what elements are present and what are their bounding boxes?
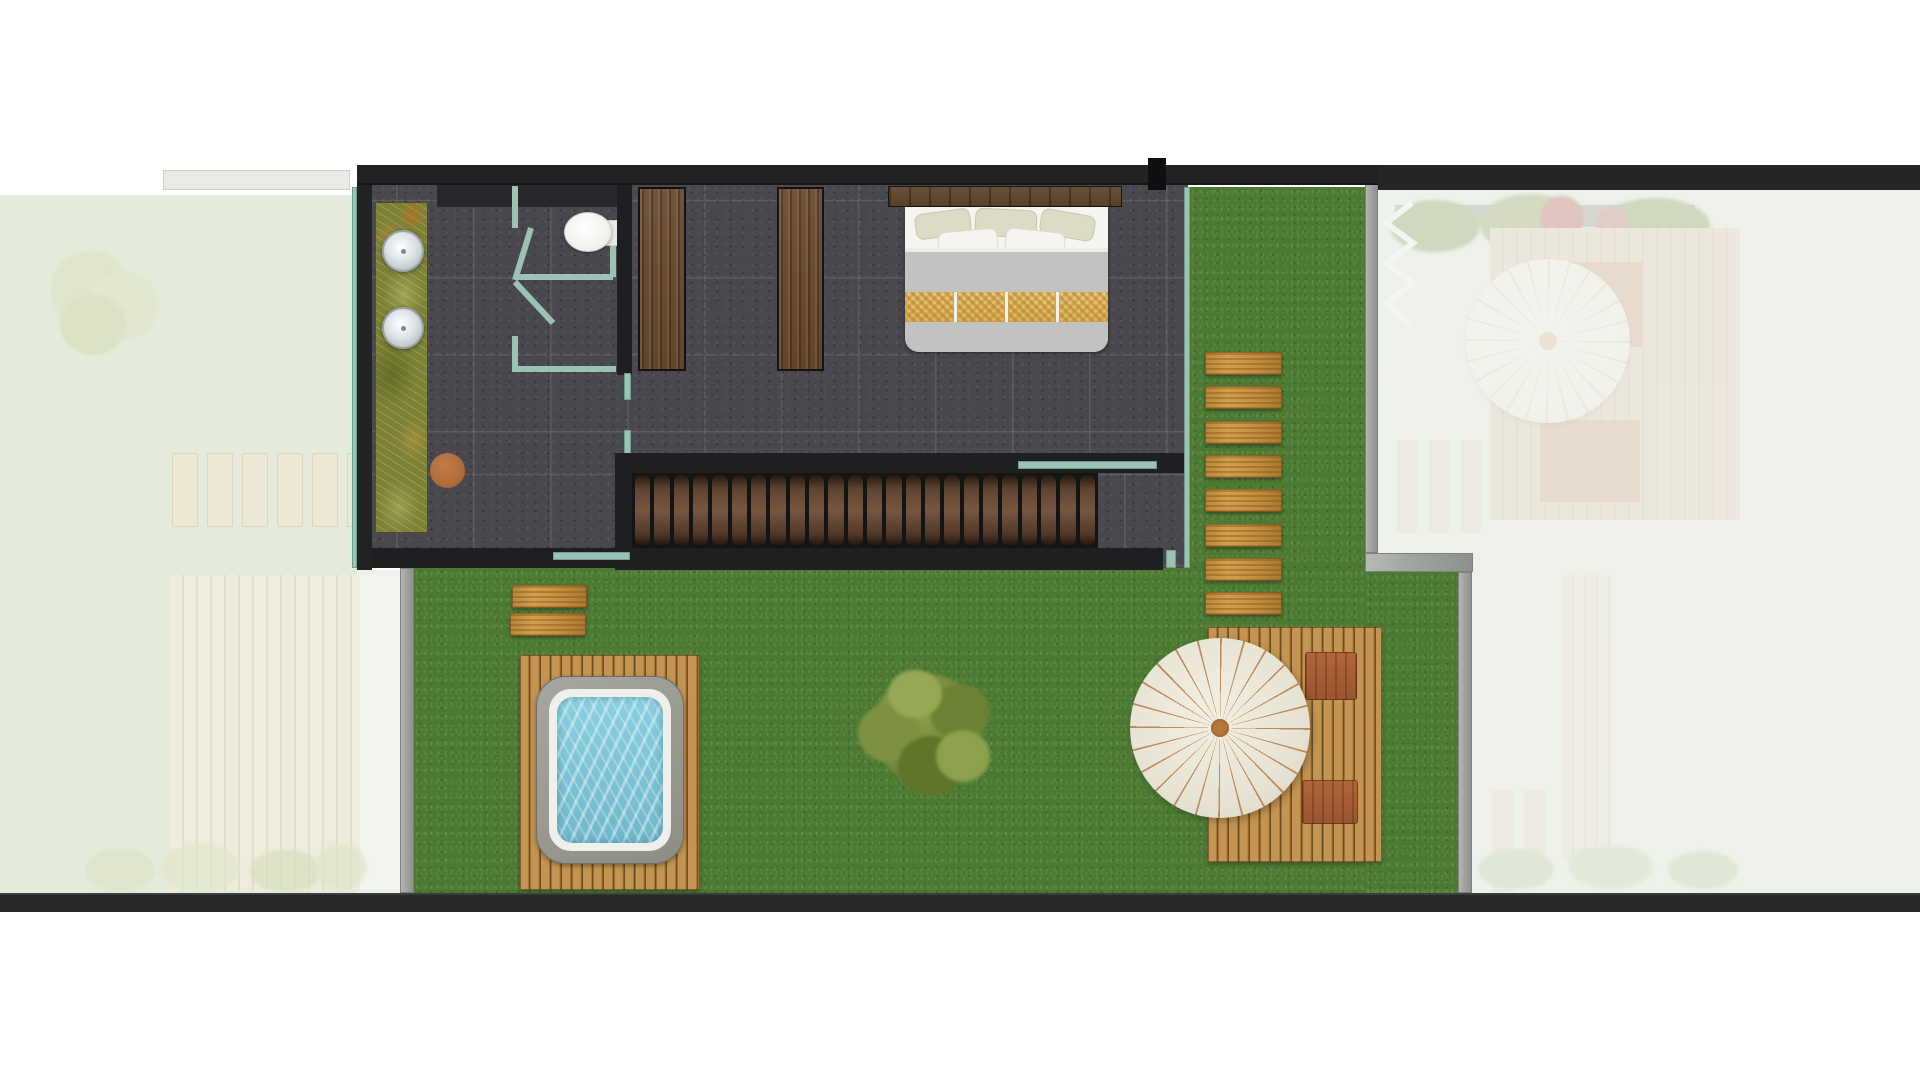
bedroom-south-window bbox=[1018, 461, 1157, 469]
stepping-plank bbox=[1205, 524, 1282, 547]
stair-tread bbox=[751, 475, 766, 546]
garden-umbrella-hub bbox=[1211, 719, 1229, 737]
party-wall-right-lower bbox=[1458, 572, 1472, 893]
shower-glass-partition bbox=[505, 178, 635, 383]
stepping-plank bbox=[1205, 455, 1282, 478]
north-wall-nib bbox=[1148, 158, 1166, 190]
neighbor-left-plank bbox=[277, 453, 303, 527]
neighbor-right-daybed-bottom bbox=[1540, 420, 1640, 502]
stepping-plank bbox=[1205, 386, 1282, 409]
party-wall-left bbox=[400, 568, 414, 893]
neighbor-right-plank bbox=[1397, 440, 1417, 533]
bathroom-bedroom-wall bbox=[617, 183, 632, 375]
neighbor-left-plank bbox=[172, 453, 198, 527]
stepping-plank bbox=[1205, 421, 1282, 444]
neighbor-left-shrubs bbox=[80, 840, 370, 898]
stair-tread bbox=[867, 475, 882, 546]
party-wall-right-step bbox=[1365, 553, 1473, 572]
neighbor-left-top-wall bbox=[163, 170, 350, 190]
stair-tread bbox=[770, 475, 785, 546]
bathroom-stool bbox=[430, 453, 465, 488]
wardrobe-1 bbox=[638, 187, 686, 371]
deck-lounger-2 bbox=[1302, 780, 1358, 824]
stair-tread bbox=[1060, 475, 1075, 546]
stair-tread bbox=[828, 475, 843, 546]
stair-tread bbox=[944, 475, 959, 546]
stair-tread bbox=[1041, 475, 1056, 546]
west-wall bbox=[357, 165, 372, 570]
neighbor-right-north-wall bbox=[1378, 165, 1920, 190]
neighbor-left-plank bbox=[242, 453, 268, 527]
neighbor-left-plank bbox=[312, 453, 338, 527]
vanity-sink-1 bbox=[382, 230, 424, 272]
neighbor-left-plank bbox=[207, 453, 233, 527]
neighbor-right-parasol-hub bbox=[1539, 332, 1557, 350]
north-wall-bar bbox=[357, 165, 1378, 185]
neighbor-right-walk-strip bbox=[1562, 575, 1612, 860]
stair-tread bbox=[848, 475, 863, 546]
landing-glass-nib bbox=[1166, 550, 1176, 568]
vanity-sink-2 bbox=[382, 307, 424, 349]
stair-tread bbox=[964, 475, 979, 546]
bed-fold-line bbox=[905, 248, 1108, 252]
stair-tread bbox=[1080, 475, 1095, 546]
stair-tread bbox=[693, 475, 708, 546]
stepping-plank bbox=[1205, 592, 1282, 615]
south-boundary-bar bbox=[0, 893, 1920, 912]
west-glass-edge bbox=[352, 187, 357, 568]
neighbor-right-shrubs bbox=[1478, 845, 1768, 893]
stair-tread bbox=[1002, 475, 1017, 546]
toilet-bowl bbox=[564, 212, 612, 252]
stair-tread bbox=[732, 475, 747, 546]
deck-lounger-1 bbox=[1305, 652, 1357, 700]
stair-tread bbox=[925, 475, 940, 546]
bed-headboard bbox=[888, 186, 1122, 207]
garden-step-plank-2 bbox=[510, 613, 586, 636]
staircase-treads bbox=[632, 473, 1098, 548]
stair-tread bbox=[712, 475, 727, 546]
stair-tread bbox=[809, 475, 824, 546]
east-glass-wall bbox=[1184, 187, 1190, 568]
stepping-plank bbox=[1205, 558, 1282, 581]
stair-tread bbox=[674, 475, 689, 546]
garden-tree bbox=[858, 664, 1003, 812]
wardrobe-2 bbox=[777, 187, 824, 371]
stair-tread bbox=[886, 475, 901, 546]
stair-tread bbox=[983, 475, 998, 546]
floor-plan-canvas bbox=[0, 0, 1920, 1080]
stepping-plank bbox=[1205, 489, 1282, 512]
bed-runner bbox=[905, 292, 1108, 322]
neighbor-right-plank bbox=[1429, 440, 1449, 533]
stepping-plank bbox=[1205, 352, 1282, 375]
stair-tread bbox=[790, 475, 805, 546]
bathroom-south-window bbox=[553, 552, 630, 560]
stair-tread bbox=[635, 475, 650, 546]
door-glass-upper bbox=[624, 373, 631, 400]
stair-tread bbox=[906, 475, 921, 546]
neighbor-right-stair-zigzag bbox=[1380, 198, 1422, 330]
garden-step-plank-1 bbox=[512, 585, 587, 608]
hot-tub-water bbox=[557, 697, 663, 843]
neighbor-left-tree bbox=[40, 240, 170, 365]
bed-mattress bbox=[905, 207, 1108, 352]
stair-tread bbox=[654, 475, 669, 546]
stair-frame-bottom bbox=[617, 548, 1163, 570]
neighbor-right-plank bbox=[1461, 440, 1481, 533]
stair-tread bbox=[1022, 475, 1037, 546]
party-wall-right-upper bbox=[1365, 183, 1378, 553]
